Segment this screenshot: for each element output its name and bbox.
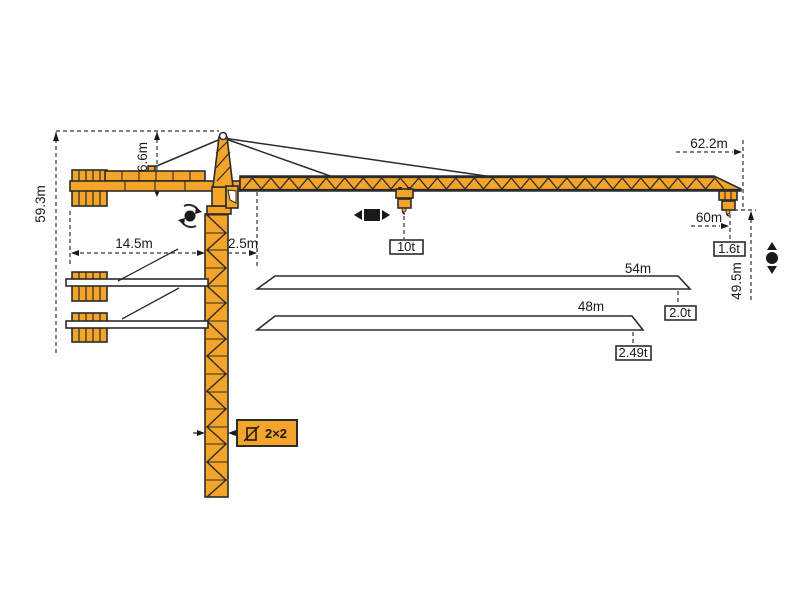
hook-block: [398, 199, 411, 208]
slewing-arrow-bottom: [178, 218, 185, 225]
jib-pendant-1: [223, 138, 333, 177]
tip-load-48-label: 2.49t: [619, 345, 648, 360]
mast-section-label: 2×2: [265, 426, 287, 441]
leader-line: [122, 288, 179, 319]
mast-width-arrow-right: [228, 430, 236, 436]
hoist-arrow-down: [767, 266, 777, 274]
trolley-mid: [396, 187, 413, 214]
jib-bar-48: [257, 316, 643, 330]
total-height-label: 59.3m: [33, 185, 48, 223]
trolley-travel-icon: [354, 209, 390, 221]
head-height-label: 6.6m: [135, 142, 150, 172]
max-radius-arrow: [721, 223, 729, 229]
hook-pin: [402, 208, 406, 212]
leader-line: [118, 249, 178, 281]
counterweight-option-a: [66, 249, 208, 301]
hook-block: [722, 201, 735, 210]
crane-diagram-page: 2×2 10t 1.6t 2.0t 2.49t 59.3m 6.6m 14.5m…: [0, 0, 800, 600]
hoist-dot: [766, 252, 778, 264]
jib-pendant-2: [223, 138, 493, 177]
trolley-frame: [719, 191, 737, 200]
tie-bar: [66, 321, 208, 328]
slewing-support: [212, 187, 226, 206]
trolley-frame: [396, 189, 413, 198]
hook-height-label: 49.5m: [729, 262, 744, 300]
trolley-icon-arrow-left: [354, 210, 362, 220]
trolley-icon-arrow-right: [382, 210, 390, 220]
hoisting-icon: [766, 242, 778, 274]
tip-load-60-label: 1.6t: [718, 241, 740, 256]
tail-radius-arrow-right: [197, 250, 205, 256]
slewing-dot: [185, 211, 196, 222]
tail-radius-label: 14.5m: [115, 236, 153, 251]
tower-mast: [205, 187, 231, 497]
jib-option-54: [257, 276, 690, 289]
slewing-arrow-top: [195, 207, 202, 214]
max-radius-label: 60m: [696, 210, 722, 225]
jib-54-label: 54m: [625, 261, 651, 276]
jib: [240, 176, 741, 191]
tower-head-body: [213, 137, 233, 187]
hook-pin: [726, 210, 730, 214]
max-load-label: 10t: [397, 239, 415, 254]
jib-option-48: [257, 316, 643, 330]
min-radius-label: 2.5m: [228, 236, 258, 251]
trolley-wheel: [407, 187, 411, 190]
trolley-wheel: [398, 187, 402, 190]
counterjib-pendant: [152, 138, 223, 168]
crane-diagram: 2×2 10t 1.6t 2.0t 2.49t 59.3m 6.6m 14.5m…: [0, 0, 800, 600]
hoist-arrow-up: [767, 242, 777, 250]
trolley-icon-body: [364, 209, 380, 221]
tip-radius-arrow: [734, 149, 742, 155]
total-height-arrow-up: [53, 132, 59, 141]
jib-48-label: 48m: [578, 299, 604, 314]
load-labels: 10t 1.6t 2.0t 2.49t: [390, 239, 745, 360]
hook-height-arrow-up: [748, 211, 754, 220]
jib-body: [240, 176, 741, 191]
head-height-arrow-up: [154, 132, 160, 140]
tip-load-54-label: 2.0t: [669, 305, 691, 320]
apex-pin: [220, 133, 227, 140]
mast-width-arrow-left: [197, 430, 205, 436]
tie-bar: [66, 279, 208, 286]
slewing-icon: [178, 205, 202, 227]
jib-bar-54: [257, 276, 690, 289]
tail-radius-arrow-left: [71, 250, 79, 256]
tip-radius-label: 62.2m: [690, 136, 728, 151]
